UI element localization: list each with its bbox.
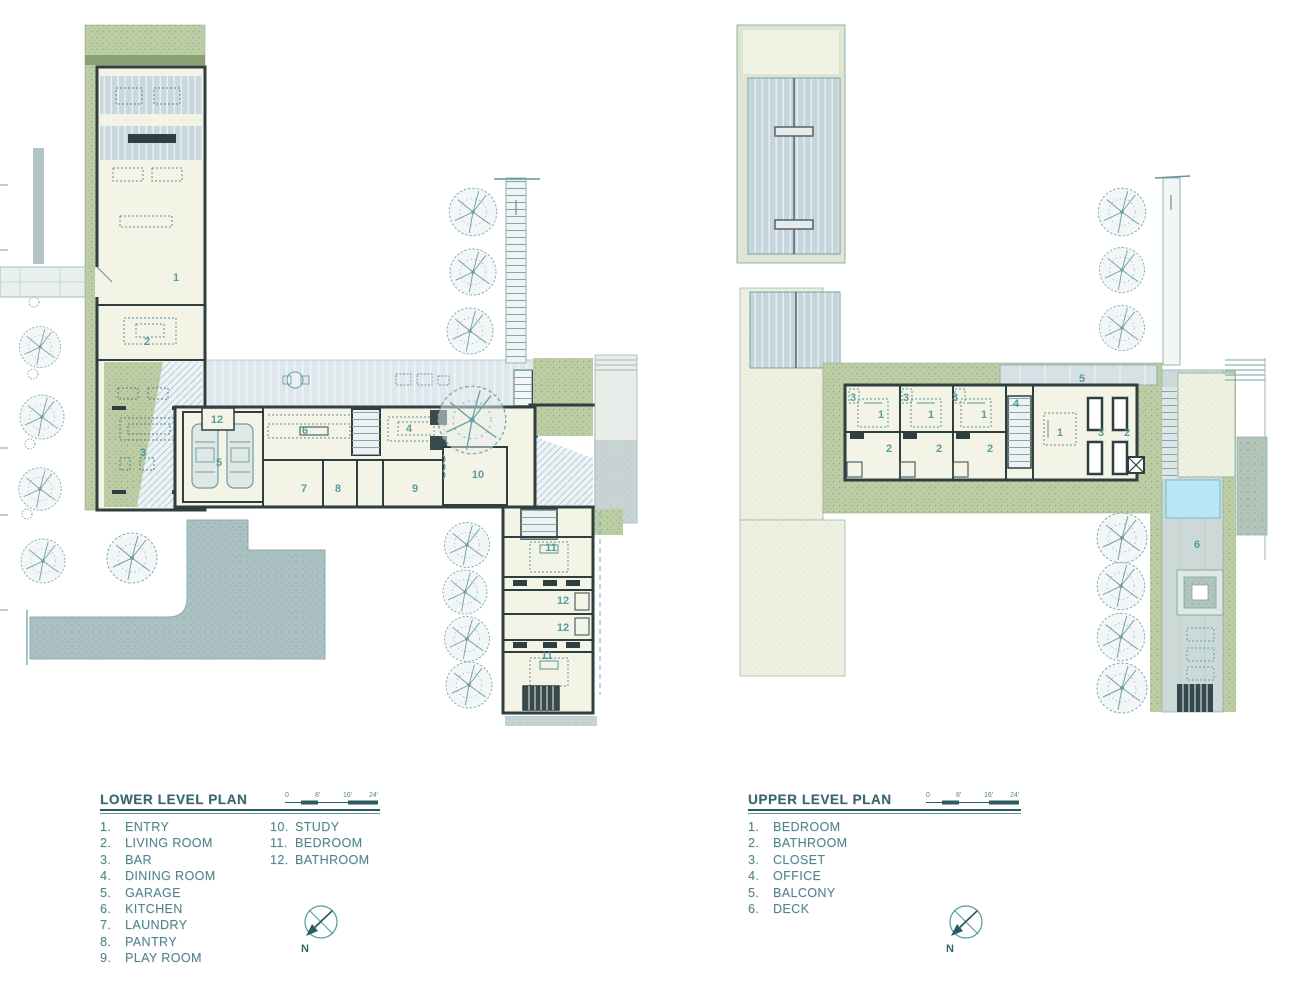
north-arrow-icon: N xyxy=(942,901,990,957)
east-terrace xyxy=(530,355,637,523)
roof-block-north xyxy=(737,25,845,263)
legend-item: 5.GARAGE xyxy=(100,885,380,901)
room-label: 11 xyxy=(545,542,557,554)
room-label: 8 xyxy=(335,483,341,495)
scale-tick-label: 24' xyxy=(1010,792,1019,799)
scale-tick-label: 0 xyxy=(926,792,930,799)
room-label: 6 xyxy=(1194,539,1200,551)
legend-item: 4.OFFICE xyxy=(748,868,1021,884)
room-label: 2 xyxy=(1124,427,1130,439)
room-label: 12 xyxy=(211,414,223,426)
room-label: 4 xyxy=(1013,398,1020,410)
legend-item: 1.BEDROOM xyxy=(748,819,1021,835)
lower-plan-drawing: 1 2 3 12 5 6 4 7 8 9 10 11 12 12 11 xyxy=(0,0,700,760)
room-label: 10 xyxy=(472,469,484,481)
legend-rule xyxy=(748,813,1021,814)
room-label: 1 xyxy=(878,409,884,421)
legend-item: 5.BALCONY xyxy=(748,885,1021,901)
lower-building-bedroom-wing xyxy=(503,507,623,726)
room-label: 1 xyxy=(173,272,179,284)
scale-tick-label: 16' xyxy=(343,792,352,799)
north-arrow-icon: N xyxy=(297,901,345,957)
entry-path xyxy=(494,178,540,363)
room-label: 1 xyxy=(1057,427,1063,439)
legend-item: 12.BATHROOM xyxy=(270,852,370,868)
north-label: N xyxy=(946,943,954,955)
room-label: 9 xyxy=(412,483,418,495)
room-label: 2 xyxy=(987,443,993,455)
room-label: 1 xyxy=(981,409,987,421)
room-label: 4 xyxy=(406,423,413,435)
legend-rule xyxy=(100,809,380,811)
legend-item: 4.DINING ROOM xyxy=(100,868,380,884)
room-label: 2 xyxy=(144,336,150,348)
room-label: 3 xyxy=(850,392,856,404)
room-label: 6 xyxy=(302,425,308,437)
room-label: 7 xyxy=(301,483,307,495)
legend-item: 2.BATHROOM xyxy=(748,835,1021,851)
deck-wing xyxy=(1162,358,1267,712)
east-path xyxy=(1155,176,1190,365)
room-label: 2 xyxy=(936,443,942,455)
legend-rule xyxy=(748,809,1021,811)
room-label: 3 xyxy=(952,392,958,404)
lower-legend-list-right: 10.STUDY 11.BEDROOM 12.BATHROOM xyxy=(270,819,370,868)
scale-bar: 0 8' 16' 24' xyxy=(925,791,1021,806)
legend-item: 11.BEDROOM xyxy=(270,835,370,851)
legend-item: 3.CLOSET xyxy=(748,852,1021,868)
room-label: 11 xyxy=(541,650,553,662)
scale-tick-label: 16' xyxy=(984,792,993,799)
scale-bar: 0 8' 16' 24' xyxy=(284,791,380,806)
scale-tick-label: 8' xyxy=(956,792,961,799)
room-label: 3 xyxy=(903,392,909,404)
room-label: 3 xyxy=(1098,427,1104,439)
scale-tick-label: 24' xyxy=(369,792,378,799)
legend-rule xyxy=(100,813,380,814)
upper-legend: UPPER LEVEL PLAN 0 8' 16' 24' 1.BEDROOM … xyxy=(748,789,1021,917)
scale-tick-label: 8' xyxy=(315,792,320,799)
north-label: N xyxy=(301,943,309,955)
room-label: 1 xyxy=(928,409,934,421)
upper-plan-title: UPPER LEVEL PLAN xyxy=(748,792,892,807)
legend-item: 10.STUDY xyxy=(270,819,370,835)
roof-block-mid xyxy=(750,292,840,368)
room-label: 3 xyxy=(140,447,146,459)
room-label: 2 xyxy=(886,443,892,455)
driveway xyxy=(27,520,325,665)
drawing-sheet: 1 2 3 12 5 6 4 7 8 9 10 11 12 12 11 xyxy=(0,0,1294,1000)
room-label: 5 xyxy=(1079,373,1085,385)
scale-tick-label: 0 xyxy=(285,792,289,799)
room-label: 5 xyxy=(216,457,222,469)
room-label: 12 xyxy=(557,595,569,607)
room-label: 12 xyxy=(557,622,569,634)
lower-plan-title: LOWER LEVEL PLAN xyxy=(100,792,247,807)
upper-plan-drawing: 3 1 2 3 1 2 3 1 2 4 5 1 3 2 6 xyxy=(700,0,1294,760)
